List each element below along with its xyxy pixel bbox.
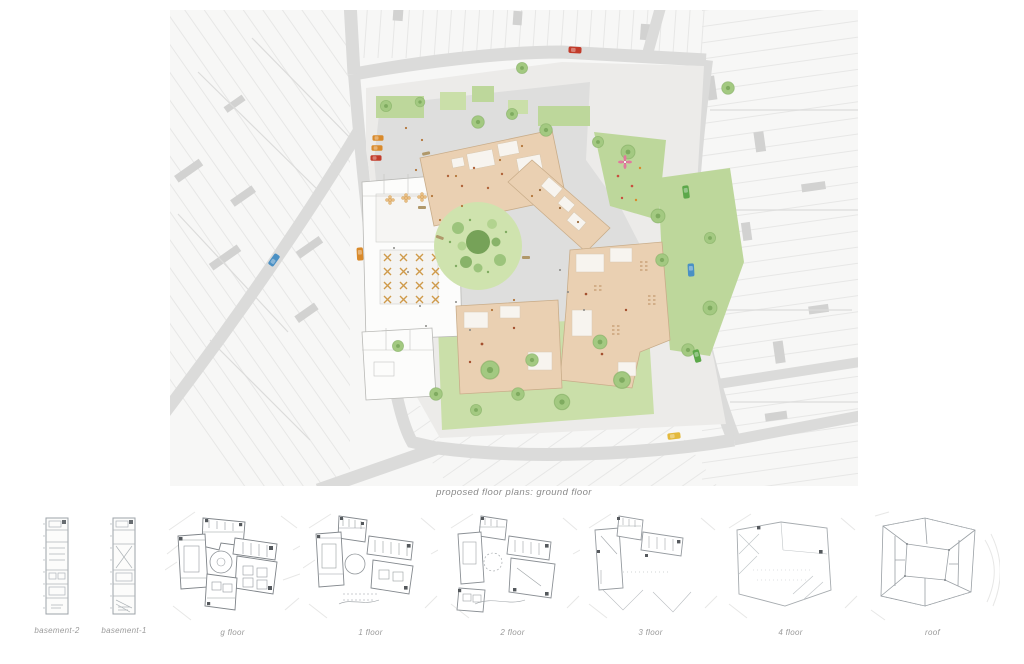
- basement-2-plan: [25, 512, 89, 620]
- main-plan-caption: proposed floor plans: ground floor: [170, 487, 858, 499]
- fourth-floor-plan: [723, 510, 858, 622]
- site-plan-drawing: [170, 10, 858, 486]
- g-floor-plan: [165, 510, 300, 622]
- basement-1-plan: [92, 512, 156, 620]
- thumb-basement-2: basement-2: [25, 512, 89, 635]
- thumb-label-basement-1: basement-1: [101, 626, 146, 635]
- thumb-label-g-floor: g floor: [220, 628, 244, 637]
- thumb-3-floor: 3 floor: [583, 510, 718, 637]
- ground-floor-site-plan: [170, 10, 858, 486]
- floor-plan-strip: basement-2 basement-1: [0, 510, 1024, 650]
- thumb-4-floor: 4 floor: [723, 510, 858, 637]
- thumb-label-4-floor: 4 floor: [778, 628, 802, 637]
- thumb-label-1-floor: 1 floor: [358, 628, 382, 637]
- central-circle-garden: [434, 202, 522, 290]
- building-south-west: [362, 328, 436, 400]
- car-icon-red: [568, 46, 581, 53]
- car-icon-orange: [356, 247, 363, 260]
- thumb-2-floor: 2 floor: [445, 510, 580, 637]
- third-floor-plan: [583, 510, 718, 622]
- second-floor-plan: [445, 510, 580, 622]
- first-floor-plan: [303, 510, 438, 622]
- thumb-g-floor: g floor: [165, 510, 300, 637]
- presentation-board: proposed floor plans: ground floor basem…: [0, 0, 1024, 664]
- thumb-basement-1: basement-1: [92, 512, 156, 635]
- car-icon-red: [370, 155, 381, 160]
- thumb-label-basement-2: basement-2: [34, 626, 79, 635]
- car-icon-blue: [687, 263, 694, 276]
- thumb-label-roof: roof: [925, 628, 940, 637]
- car-icon-orange: [371, 145, 382, 150]
- roof-plan: [865, 510, 1000, 622]
- thumb-roof: roof: [865, 510, 1000, 637]
- car-icon-orange: [372, 135, 383, 140]
- thumb-1-floor: 1 floor: [303, 510, 438, 637]
- thumb-label-3-floor: 3 floor: [638, 628, 662, 637]
- thumb-label-2-floor: 2 floor: [500, 628, 524, 637]
- building-south: [456, 300, 562, 394]
